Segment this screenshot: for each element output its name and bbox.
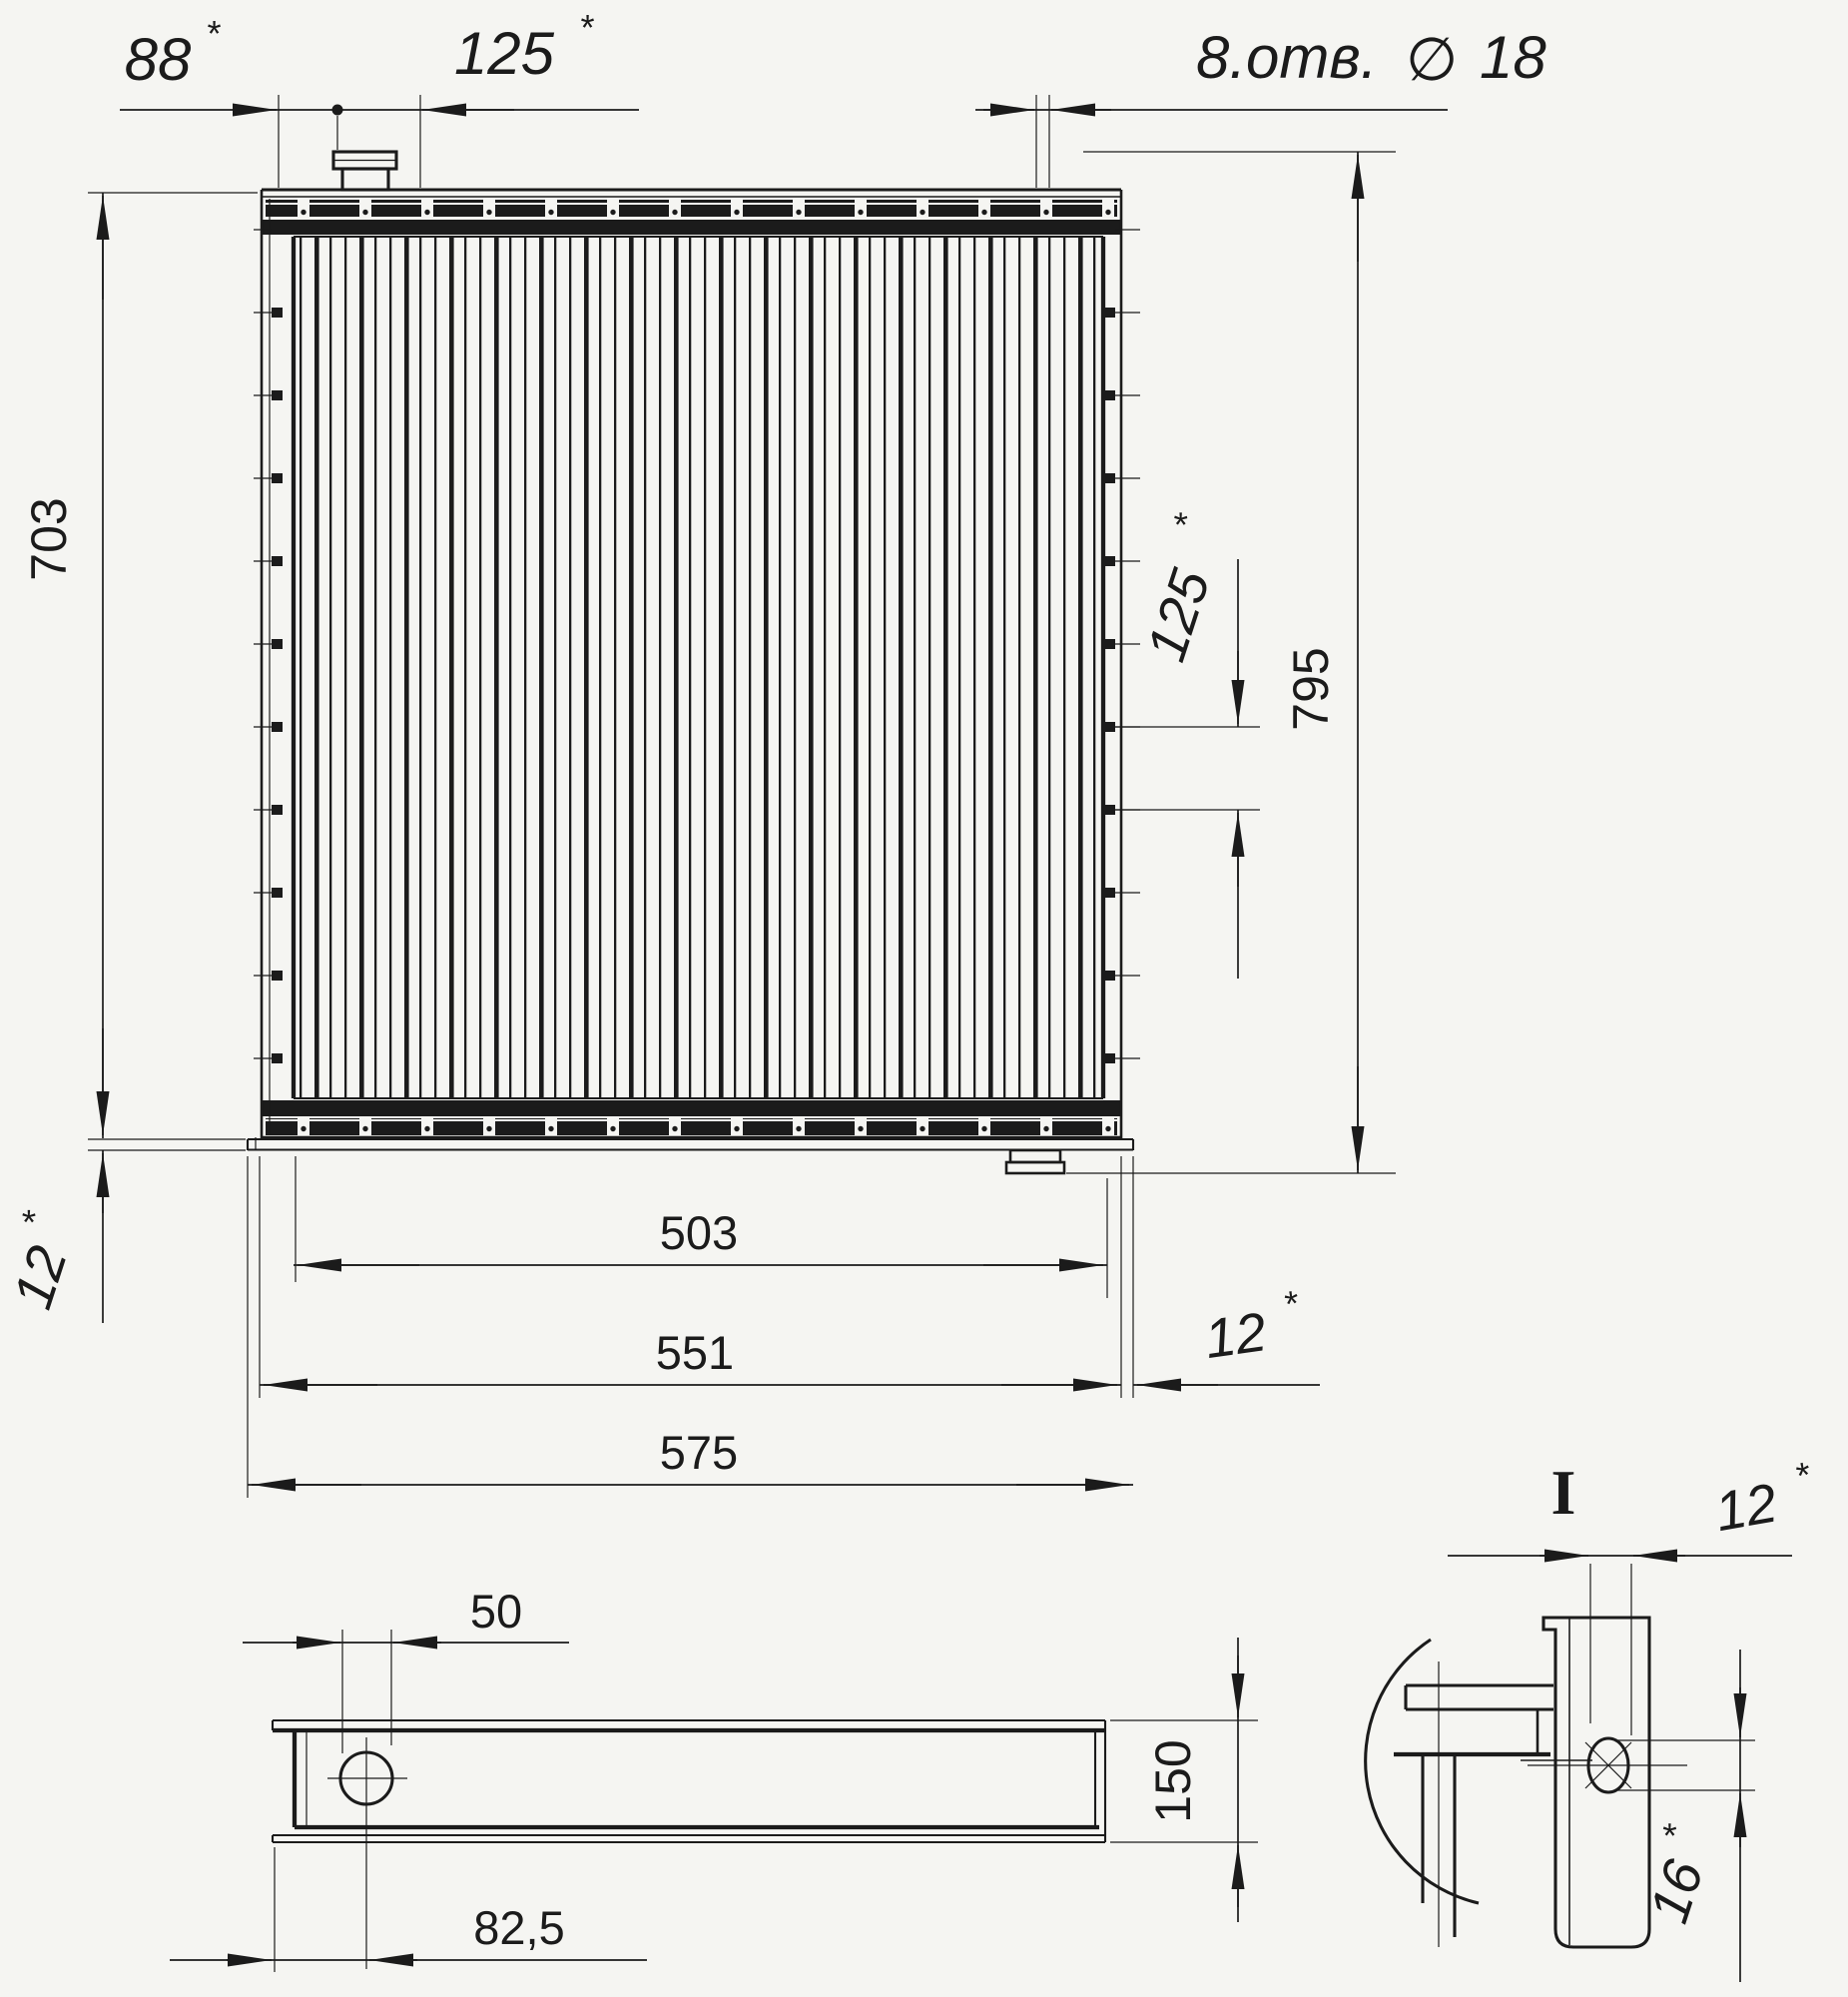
dim-label-575: 575 — [660, 1426, 738, 1479]
side-view: 50 82,5 150 — [170, 1585, 1258, 1972]
dim-label-12-right: 12 — [1201, 1300, 1270, 1370]
dim-label-503: 503 — [660, 1206, 738, 1259]
bottom-bolt-row — [266, 1118, 1117, 1135]
dim-label-150: 150 — [1145, 1739, 1201, 1822]
dim-label-12-left: 12 — [1, 1238, 79, 1315]
top-tank — [262, 190, 1121, 235]
corner-bracket — [1394, 1662, 1592, 1947]
dim-label-50: 50 — [470, 1585, 522, 1638]
dim-12-left: 12 * — [0, 1139, 246, 1323]
detail-view: I — [1366, 1454, 1819, 1982]
diameter-symbol: ∅ — [1406, 26, 1458, 93]
star-marker: * — [579, 7, 594, 48]
pipe-hole — [327, 1737, 407, 1969]
dim-label-551: 551 — [656, 1326, 734, 1379]
filler-neck — [333, 152, 396, 190]
detail-view-label: I — [1551, 1457, 1576, 1528]
dim-label-795: 795 — [1283, 647, 1339, 730]
dim-125-side: 125 * — [1114, 508, 1260, 979]
side-plate — [1543, 1564, 1649, 1947]
outlet-stub — [1006, 1150, 1064, 1173]
dim-label-82-5: 82,5 — [473, 1901, 564, 1954]
bottom-lip — [248, 1137, 1133, 1150]
front-view — [248, 152, 1140, 1173]
star-marker: * — [1792, 1454, 1814, 1497]
top-bolt-row — [266, 200, 1117, 217]
star-marker: * — [1164, 508, 1208, 535]
dim-12-right: 12 * — [1133, 1156, 1320, 1398]
star-marker: * — [206, 13, 221, 54]
dim-16: 16 * — [1617, 1650, 1755, 1982]
dim-holes-note: 8.отв. ∅ 18 — [975, 24, 1546, 188]
bolt-hole — [1528, 1738, 1687, 1792]
dim-150: 150 — [1110, 1638, 1258, 1922]
dim-703: 703 — [21, 193, 258, 1138]
star-marker: * — [1653, 1819, 1697, 1846]
hole-diameter-label: 18 — [1480, 24, 1546, 91]
dim-503: 503 — [294, 1156, 1107, 1298]
dim-label-125-top: 125 — [454, 20, 555, 87]
drawing-sheet: 88 * 125 * 8.отв. ∅ 18 — [0, 0, 1848, 1997]
dim-origin-dot — [332, 105, 343, 116]
left-frame — [254, 190, 283, 1138]
holes-count-label: 8.отв. — [1196, 24, 1377, 91]
bottom-tank — [262, 1100, 1121, 1137]
star-marker: * — [1281, 1282, 1302, 1325]
dim-795: 795 — [1066, 152, 1396, 1173]
dim-label-703: 703 — [21, 497, 77, 580]
dim-12-detail: 12 * — [1448, 1454, 1819, 1556]
dim-82-5: 82,5 — [170, 1847, 647, 1972]
dim-label-125-side: 125 — [1134, 562, 1221, 669]
dim-50: 50 — [243, 1585, 569, 1753]
right-frame — [1104, 190, 1140, 1138]
dim-label-88: 88 — [125, 26, 192, 93]
star-marker: * — [12, 1206, 56, 1233]
radiator-core — [294, 237, 1103, 1098]
dim-label-12-detail: 12 — [1710, 1471, 1781, 1543]
dim-551: 551 — [260, 1156, 1121, 1398]
technical-drawing: 88 * 125 * 8.отв. ∅ 18 — [0, 0, 1848, 1997]
